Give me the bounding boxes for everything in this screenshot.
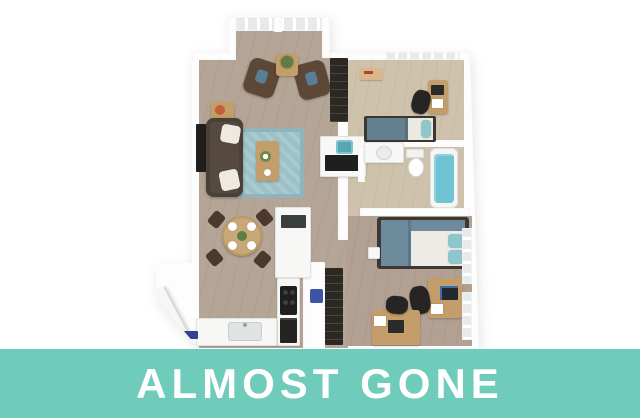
bedroom-1-window	[386, 52, 460, 60]
plate-4	[247, 241, 256, 250]
divider-wall-mid	[338, 177, 348, 240]
oven	[280, 318, 297, 343]
entry-door-open	[147, 286, 188, 340]
bathtub-water	[434, 154, 454, 203]
nook-window-mullion	[274, 16, 282, 32]
bedroom-2-office-chair-bottom	[385, 295, 408, 315]
promo-banner: ALMOST GONE	[0, 349, 640, 418]
promo-banner-label: ALMOST GONE	[136, 363, 504, 405]
vanity-sink	[376, 146, 392, 160]
sofa-pillow-bottom	[218, 168, 241, 192]
dining-centerpiece	[237, 231, 247, 241]
nook-right-wall	[322, 16, 330, 58]
burner-1	[283, 290, 288, 295]
bathroom-bedroom-2-wall	[360, 208, 470, 216]
toilet-tank	[406, 149, 424, 158]
plate-2	[247, 222, 256, 231]
sofa-pillow-top	[220, 123, 242, 144]
desk-right-papers	[431, 304, 443, 314]
island-appliance	[281, 215, 306, 228]
bedroom-1-blanket	[367, 118, 408, 140]
desk-bottom-laptop	[388, 320, 404, 333]
table-flowers	[260, 151, 271, 162]
bedroom-1-wall-art	[360, 68, 382, 80]
wall-tv	[196, 124, 206, 172]
kitchenette-appliance	[325, 155, 362, 171]
plate-3	[228, 241, 237, 250]
bedroom-2-nightstand	[368, 247, 380, 259]
bedroom-2-blanket	[381, 220, 411, 266]
top-wall-left	[192, 52, 236, 60]
bedroom-1-laptop	[431, 85, 444, 95]
desk-right-monitor	[440, 286, 458, 300]
orange-pot	[215, 105, 225, 115]
bedroom-2-closet-shelves	[325, 268, 343, 345]
burner-2	[290, 290, 295, 295]
entry-door-mat	[178, 331, 198, 339]
coffee-cup	[264, 169, 271, 176]
bedroom-2-window-lower	[462, 292, 472, 340]
blue-wall-art	[310, 289, 323, 303]
bedroom-2-blanket-runner	[411, 220, 465, 231]
burner-3	[283, 300, 288, 305]
flyer-image: ALMOST GONE	[0, 0, 640, 418]
teal-dishware	[336, 140, 353, 154]
wall-art-detail	[364, 71, 373, 74]
bedroom-1-pillow	[421, 120, 431, 138]
toilet-bowl	[408, 158, 424, 177]
entry-closet-shelves	[330, 58, 348, 122]
desk-bottom-papers	[374, 316, 386, 326]
bedroom-2-window-upper	[462, 228, 472, 284]
bedroom-1-papers	[432, 99, 443, 108]
plate-1	[228, 222, 237, 231]
sink-faucet	[243, 323, 247, 327]
burner-4	[290, 300, 295, 305]
potted-plant	[281, 56, 293, 68]
